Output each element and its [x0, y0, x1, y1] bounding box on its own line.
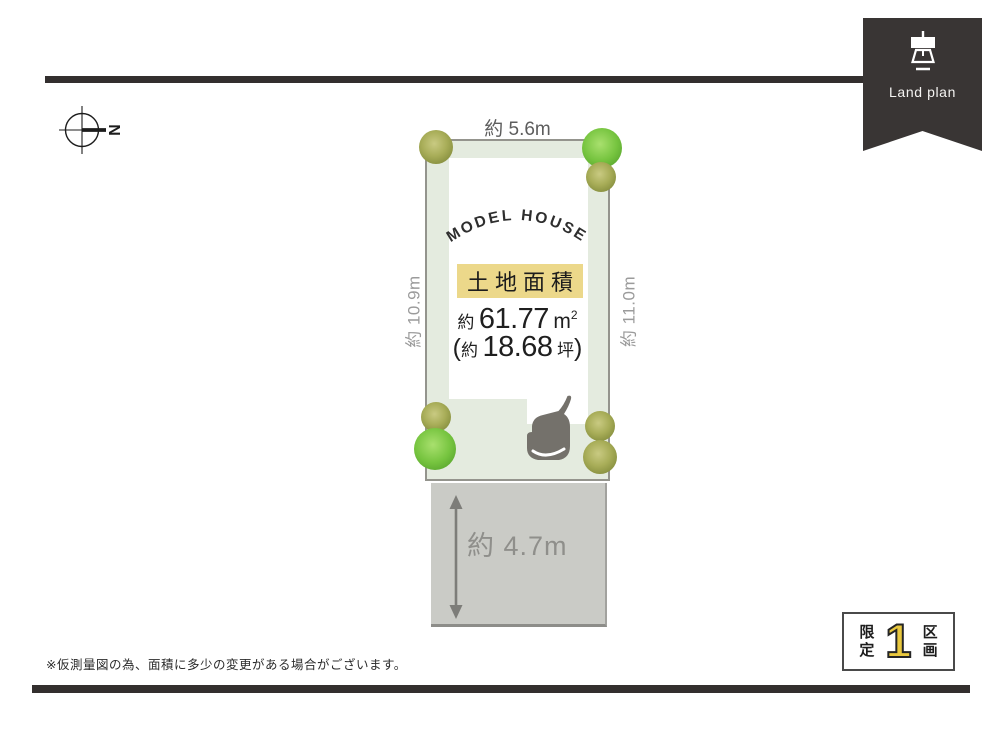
model-house-arc-label: MODEL HOUSE	[437, 193, 597, 253]
sqm-prefix: 約	[457, 313, 474, 332]
badge-prefix: 限定	[859, 624, 874, 659]
land-area-heading: 土地面積	[457, 264, 583, 298]
frontage-arrow-icon	[446, 494, 466, 620]
tsubo-open: (	[453, 334, 461, 362]
frontage-dimension-label: 約 4.7m	[467, 524, 568, 563]
limited-lot-badge: 限定 1 区画	[842, 612, 955, 671]
sqm-unit-sup: 2	[571, 308, 578, 322]
tree-icon	[583, 440, 617, 474]
land-plan-page: Land plan N 約 5.6m 約 10.9m 約 11.0m 約 4.7…	[0, 0, 1000, 750]
compass-letter: N	[105, 124, 122, 136]
compass-icon: N	[56, 103, 130, 158]
model-house-text: MODEL HOUSE	[444, 207, 591, 246]
badge-number: 1	[885, 617, 911, 667]
dimension-right-label: 約 11.0m	[615, 252, 640, 372]
survey-footnote: ※仮測量図の為、面積に多少の変更がある場合がございます。	[46, 654, 407, 673]
dimension-left-label: 約 10.9m	[400, 252, 425, 372]
tree-icon	[586, 162, 616, 192]
tree-icon	[585, 411, 615, 441]
car-icon	[512, 391, 580, 470]
svg-text:MODEL HOUSE: MODEL HOUSE	[444, 207, 591, 246]
sqm-unit: m	[553, 310, 571, 333]
land-plan-ribbon: Land plan	[863, 18, 982, 151]
land-area-tsubo: (約 18.68 坪)	[425, 331, 610, 364]
ribbon-label: Land plan	[889, 84, 956, 100]
survey-instrument-icon	[906, 31, 940, 75]
tsubo-unit: 坪	[557, 341, 574, 360]
top-rule	[45, 76, 863, 83]
compass-north-indicator: N	[56, 103, 130, 163]
badge-suffix: 区画	[923, 624, 938, 659]
tsubo-close: )	[574, 334, 582, 362]
tsubo-value: 18.68	[482, 331, 552, 363]
dimension-top-label: 約 5.6m	[425, 114, 610, 141]
bottom-rule	[32, 685, 970, 693]
tree-icon	[414, 428, 456, 470]
tsubo-prefix: 約	[461, 341, 478, 360]
